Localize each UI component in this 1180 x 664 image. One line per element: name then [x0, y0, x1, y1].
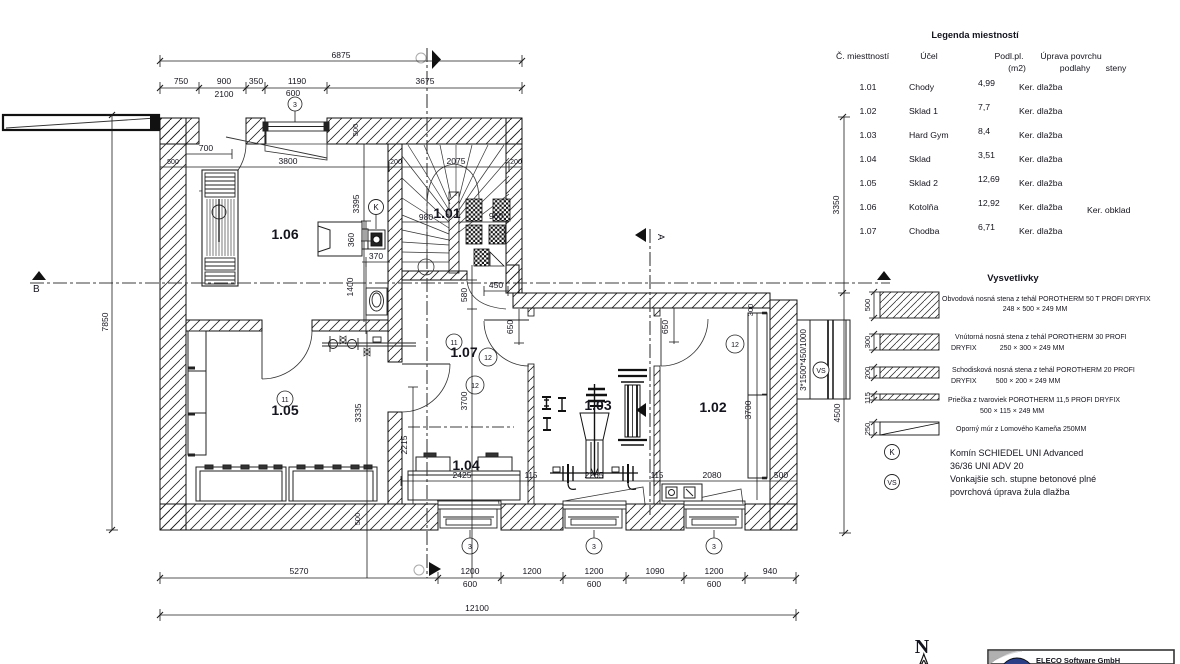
svg-text:900: 900 — [217, 76, 231, 86]
svg-text:12: 12 — [484, 355, 492, 362]
svg-text:Ker. dlažba: Ker. dlažba — [1019, 106, 1063, 116]
svg-text:1200: 1200 — [523, 566, 542, 576]
svg-text:350: 350 — [249, 76, 263, 86]
svg-text:500: 500 — [351, 124, 360, 137]
svg-text:DRYFIX: DRYFIX — [951, 378, 977, 385]
svg-text:Kotolňa: Kotolňa — [909, 202, 939, 212]
svg-text:Obvodová nosná stena z tehál P: Obvodová nosná stena z tehál POROTHERM 5… — [942, 296, 1151, 303]
svg-text:500: 500 — [167, 159, 179, 166]
svg-text:Vnútorná nosná stena z tehál P: Vnútorná nosná stena z tehál POROTHERM 3… — [955, 334, 1127, 341]
svg-text:Ker. dlažba: Ker. dlažba — [1019, 154, 1063, 164]
svg-text:12100: 12100 — [465, 603, 489, 613]
svg-text:2425: 2425 — [453, 470, 472, 480]
svg-text:2100: 2100 — [215, 89, 234, 99]
svg-text:1.02: 1.02 — [699, 399, 726, 415]
svg-text:1.01: 1.01 — [433, 205, 460, 221]
svg-text:750: 750 — [174, 76, 188, 86]
svg-text:370: 370 — [369, 251, 383, 261]
svg-text:12: 12 — [731, 342, 739, 349]
svg-text:3800: 3800 — [279, 156, 298, 166]
svg-text:(m2): (m2) — [1008, 63, 1026, 73]
svg-text:Sklad 1: Sklad 1 — [909, 106, 938, 116]
svg-text:K: K — [373, 203, 379, 212]
svg-text:Č. miesttností: Č. miesttností — [836, 51, 890, 61]
svg-text:Komín SCHIEDEL UNI Advanced: Komín SCHIEDEL UNI Advanced — [950, 448, 1083, 458]
svg-text:4,99: 4,99 — [978, 78, 995, 88]
svg-text:1.05: 1.05 — [271, 402, 298, 418]
svg-text:1190: 1190 — [288, 76, 307, 86]
svg-text:248 × 500 × 249 MM: 248 × 500 × 249 MM — [1003, 306, 1068, 313]
svg-text:3: 3 — [468, 544, 472, 551]
svg-text:1.05: 1.05 — [860, 178, 877, 188]
svg-text:Ker. dlažba: Ker. dlažba — [1019, 82, 1063, 92]
svg-text:250: 250 — [863, 423, 872, 436]
svg-text:650: 650 — [505, 320, 515, 334]
svg-text:Ker. dlažba: Ker. dlažba — [1019, 178, 1063, 188]
svg-text:1.04: 1.04 — [860, 154, 877, 164]
svg-text:5270: 5270 — [290, 566, 309, 576]
svg-text:250 × 300 × 249 MM: 250 × 300 × 249 MM — [1000, 345, 1065, 352]
svg-text:Legenda miestností: Legenda miestností — [931, 30, 1019, 40]
svg-text:980: 980 — [419, 212, 433, 222]
svg-text:200: 200 — [863, 367, 872, 380]
svg-text:600: 600 — [707, 579, 721, 589]
svg-text:ELECO Software GmbH: ELECO Software GmbH — [1036, 656, 1120, 664]
svg-text:3395: 3395 — [351, 194, 361, 213]
svg-text:3: 3 — [293, 102, 297, 109]
svg-text:VS: VS — [816, 368, 826, 375]
svg-text:8,4: 8,4 — [978, 126, 990, 136]
svg-text:Sklad: Sklad — [909, 154, 931, 164]
svg-text:3,51: 3,51 — [978, 150, 995, 160]
svg-text:7850: 7850 — [100, 312, 110, 331]
svg-text:12,92: 12,92 — [978, 198, 1000, 208]
svg-text:3675: 3675 — [416, 76, 435, 86]
svg-text:povrchová úprava žula dlažba: povrchová úprava žula dlažba — [950, 487, 1070, 497]
svg-text:115: 115 — [863, 392, 872, 404]
svg-text:500: 500 — [863, 299, 872, 312]
svg-text:200: 200 — [390, 159, 402, 166]
svg-text:2265: 2265 — [585, 470, 604, 480]
svg-text:2080: 2080 — [703, 470, 722, 480]
svg-text:Vysvetlivky: Vysvetlivky — [987, 273, 1039, 284]
svg-text:1.06: 1.06 — [860, 202, 877, 212]
svg-text:1.03: 1.03 — [860, 130, 877, 140]
svg-text:650: 650 — [660, 320, 670, 334]
svg-text:200: 200 — [510, 159, 522, 166]
svg-text:2215: 2215 — [399, 435, 409, 454]
svg-text:300: 300 — [863, 336, 872, 349]
svg-text:600: 600 — [286, 88, 300, 98]
svg-text:600: 600 — [463, 579, 477, 589]
svg-text:36/36 UNI ADV 20: 36/36 UNI ADV 20 — [950, 461, 1024, 471]
svg-text:3350: 3350 — [831, 195, 841, 214]
svg-text:Hard Gym: Hard Gym — [909, 130, 949, 140]
svg-text:580: 580 — [459, 288, 469, 302]
svg-text:1200: 1200 — [585, 566, 604, 576]
svg-text:podlahy: podlahy — [1060, 63, 1091, 73]
svg-text:360: 360 — [346, 233, 356, 247]
svg-text:2075: 2075 — [447, 156, 466, 166]
svg-text:3700: 3700 — [743, 400, 753, 419]
svg-text:Účel: Účel — [920, 51, 937, 61]
svg-text:11: 11 — [281, 397, 288, 404]
svg-text:Chody: Chody — [909, 82, 935, 92]
svg-text:4500: 4500 — [832, 403, 842, 422]
svg-text:Ker. obklad: Ker. obklad — [1087, 205, 1131, 215]
svg-text:DRYFIX: DRYFIX — [951, 345, 977, 352]
svg-text:K: K — [889, 448, 895, 457]
svg-text:steny: steny — [1106, 63, 1127, 73]
svg-text:Priečka z tvaroviek POROTHERM: Priečka z tvaroviek POROTHERM 11,5 PROFI… — [948, 397, 1120, 404]
svg-text:Vonkajšie sch. stupne betonové: Vonkajšie sch. stupne betonové plné — [950, 474, 1096, 484]
svg-text:3: 3 — [712, 544, 716, 551]
svg-text:N: N — [915, 636, 930, 658]
svg-text:115: 115 — [651, 471, 664, 480]
svg-text:960: 960 — [489, 211, 503, 221]
svg-text:1.01: 1.01 — [860, 82, 877, 92]
svg-text:1.02: 1.02 — [860, 106, 877, 116]
svg-text:Ker. dlažba: Ker. dlažba — [1019, 202, 1063, 212]
svg-text:3700: 3700 — [459, 391, 469, 410]
svg-text:500: 500 — [353, 513, 362, 526]
svg-text:Chodba: Chodba — [909, 226, 940, 236]
svg-text:3*1500*450/1000: 3*1500*450/1000 — [799, 329, 808, 391]
svg-text:700: 700 — [199, 143, 213, 153]
svg-text:1.07: 1.07 — [860, 226, 877, 236]
svg-text:3335: 3335 — [353, 403, 363, 422]
svg-text:Podl.pl.: Podl.pl. — [995, 51, 1024, 61]
svg-text:1400: 1400 — [345, 277, 355, 296]
svg-text:940: 940 — [763, 566, 777, 576]
svg-text:Ker. dlažba: Ker. dlažba — [1019, 226, 1063, 236]
svg-text:300: 300 — [746, 304, 755, 317]
svg-text:Úprava povrchu: Úprava povrchu — [1040, 51, 1101, 61]
svg-text:VS: VS — [887, 480, 897, 487]
svg-text:3: 3 — [592, 544, 596, 551]
svg-text:Oporný múr z Lomového Kameňa: Oporný múr z Lomového Kameňa 250MM — [956, 426, 1087, 433]
svg-text:1.06: 1.06 — [271, 226, 298, 242]
svg-text:Sklad 2: Sklad 2 — [909, 178, 938, 188]
svg-text:450: 450 — [489, 280, 503, 290]
svg-text:115: 115 — [525, 471, 538, 480]
svg-text:1.03: 1.03 — [584, 397, 611, 413]
svg-text:500: 500 — [774, 470, 788, 480]
svg-text:500 × 115 × 249 MM: 500 × 115 × 249 MM — [980, 408, 1044, 415]
svg-text:1200: 1200 — [461, 566, 480, 576]
svg-text:Schodisková nosná stena z tehá: Schodisková nosná stena z tehál POROTHER… — [952, 367, 1135, 374]
svg-text:12,69: 12,69 — [978, 174, 1000, 184]
svg-text:6,71: 6,71 — [978, 222, 995, 232]
svg-text:7,7: 7,7 — [978, 102, 990, 112]
svg-text:1090: 1090 — [646, 566, 665, 576]
svg-text:B: B — [33, 284, 40, 295]
svg-text:6875: 6875 — [332, 50, 351, 60]
svg-text:Ker. dlažba: Ker. dlažba — [1019, 130, 1063, 140]
svg-text:500 × 200 × 249 MM: 500 × 200 × 249 MM — [996, 378, 1061, 385]
svg-text:A: A — [656, 234, 666, 240]
svg-text:1200: 1200 — [705, 566, 724, 576]
svg-text:11: 11 — [450, 340, 457, 347]
svg-text:600: 600 — [587, 579, 601, 589]
